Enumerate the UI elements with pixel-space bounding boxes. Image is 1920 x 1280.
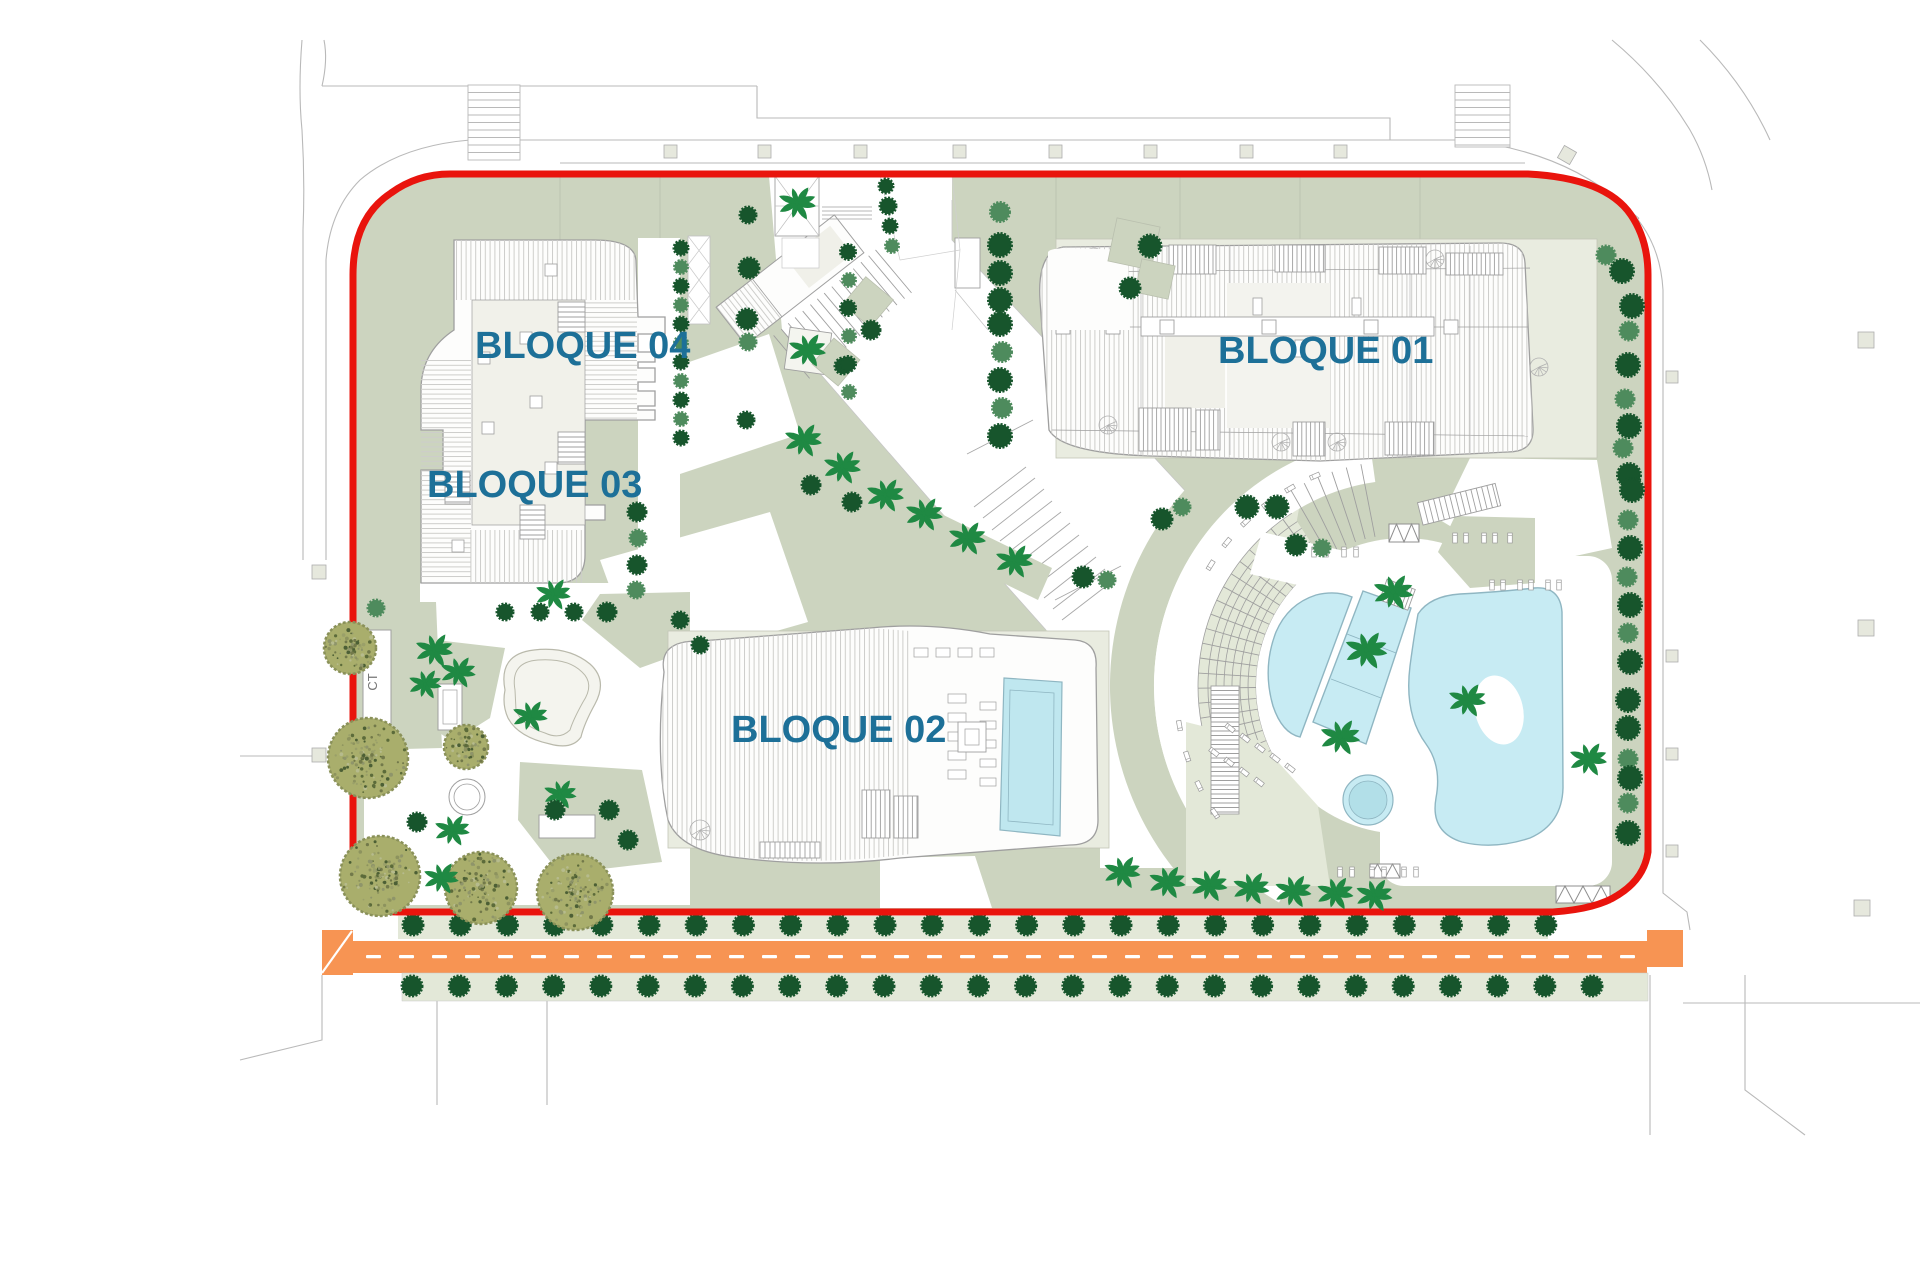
svg-text:CT: CT bbox=[365, 673, 380, 690]
svg-text:BLOQUE 01: BLOQUE 01 bbox=[1218, 330, 1433, 372]
svg-text:BLOQUE 04: BLOQUE 04 bbox=[475, 325, 690, 367]
svg-text:BLOQUE 02: BLOQUE 02 bbox=[731, 709, 946, 751]
svg-text:BLOQUE 03: BLOQUE 03 bbox=[427, 464, 642, 506]
